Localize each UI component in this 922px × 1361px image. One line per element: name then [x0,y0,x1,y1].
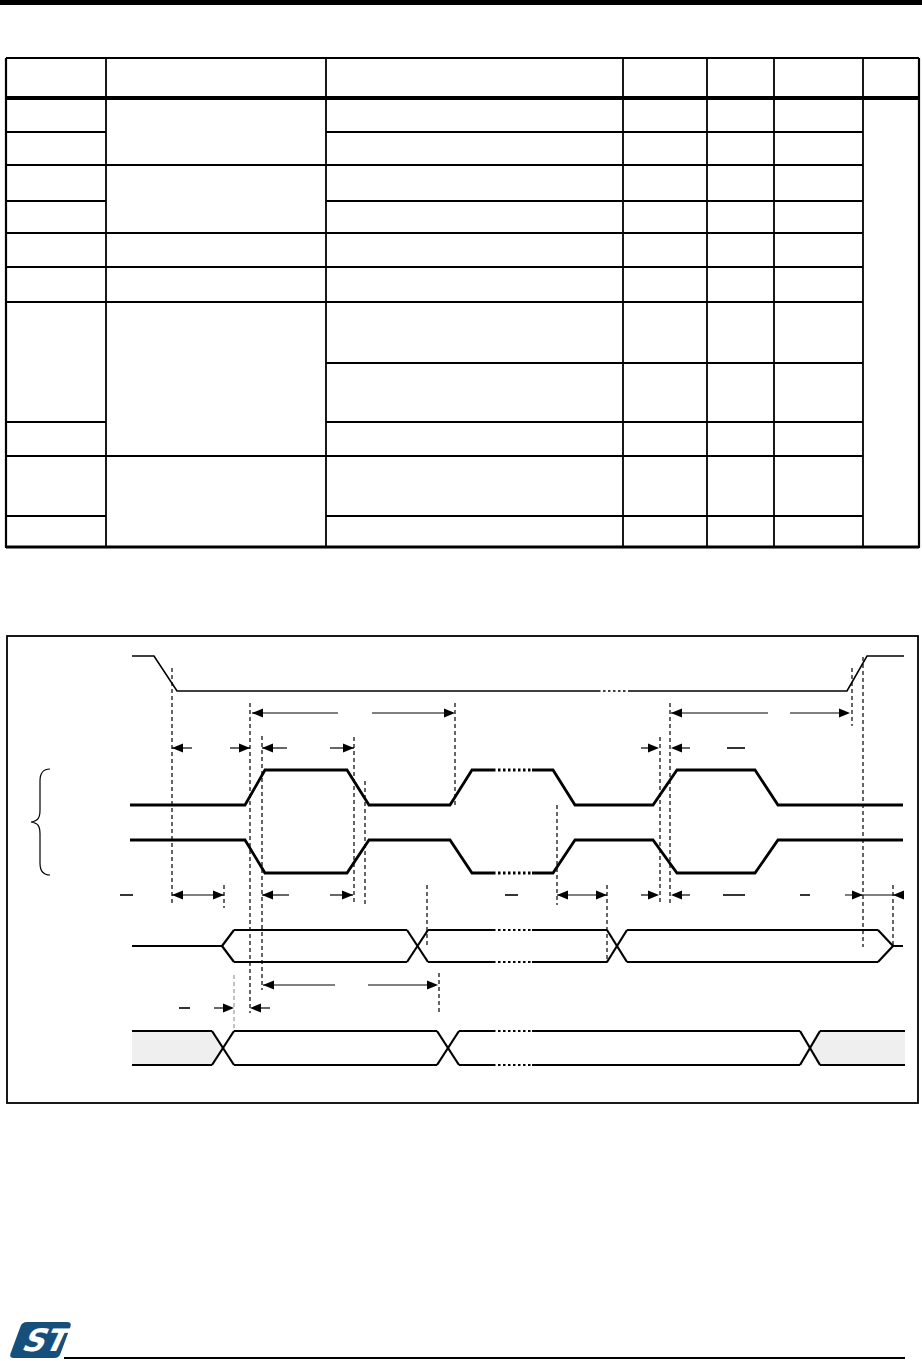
miso-bus [132,930,903,962]
footer-rule [64,1357,905,1359]
timing-diagram [0,560,922,1120]
st-logo-canvas: ST [0,1120,922,1361]
table-row-lines [6,132,863,516]
nss-signal [132,656,904,691]
st-logo-letters: ST [19,1322,76,1358]
st-logo: ST [10,1322,75,1358]
table-grid-lines [0,0,922,560]
mosi-gray-left-segment [132,1031,223,1065]
dimension-lines [120,713,903,1008]
sck-cpol0-signal [130,770,903,805]
sck-cpol1-signal [130,840,903,873]
mosi-bus [132,1031,905,1065]
dashed-guides [172,657,893,1013]
arrowheads [172,709,904,1013]
signal-group-brace [31,769,50,875]
dimension-arrows [120,709,904,1013]
mosi-gray-right-segment [811,1031,905,1065]
footer: ST [0,1120,922,1361]
timing-diagram-canvas [0,560,922,1120]
parameters-table [0,0,922,560]
